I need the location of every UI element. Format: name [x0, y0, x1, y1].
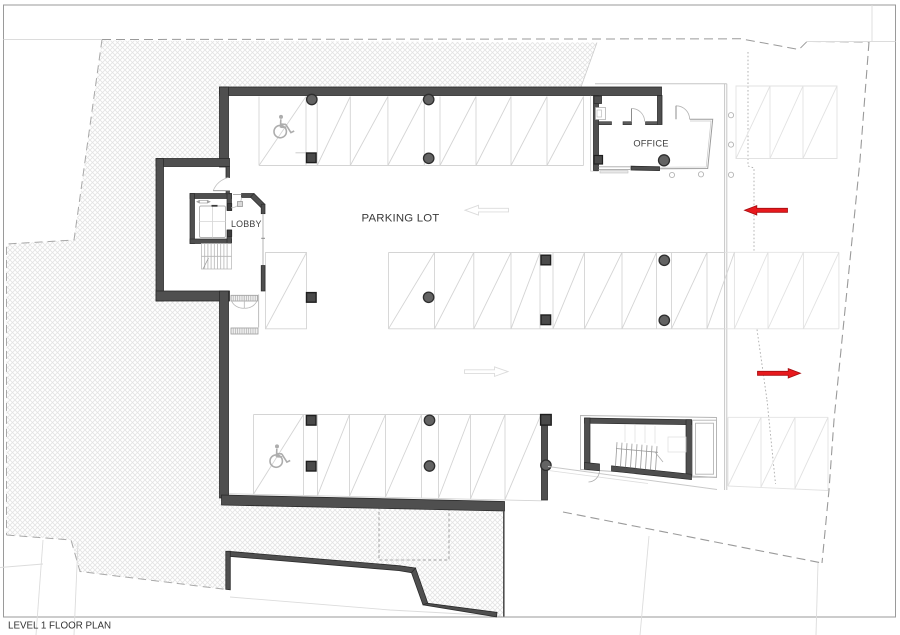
- svg-text:OFFICE: OFFICE: [633, 138, 668, 148]
- svg-text:PARKING LOT: PARKING LOT: [362, 213, 440, 225]
- svg-text:LOBBY: LOBBY: [231, 219, 262, 229]
- svg-text:LEVEL 1 FLOOR PLAN: LEVEL 1 FLOOR PLAN: [8, 621, 111, 632]
